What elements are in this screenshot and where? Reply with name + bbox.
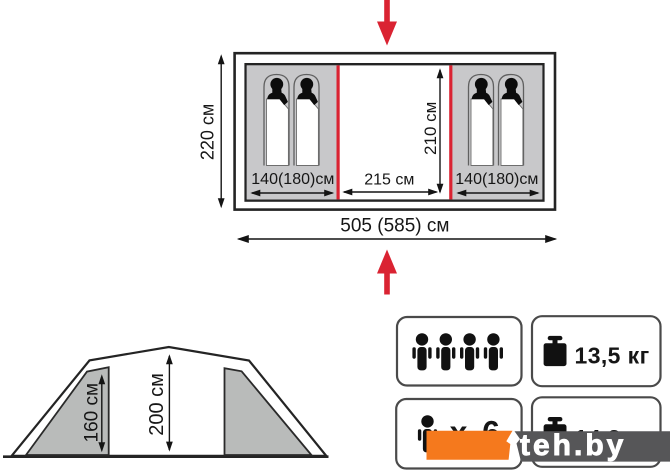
svg-text:140(180)см: 140(180)см: [455, 171, 538, 188]
svg-text:160 см: 160 см: [81, 383, 102, 443]
svg-text:200 см: 200 см: [146, 373, 168, 436]
svg-text:140(180)см: 140(180)см: [251, 171, 334, 188]
svg-text:220 см: 220 см: [197, 104, 217, 160]
svg-text:teh.by: teh.by: [520, 429, 626, 462]
svg-text:210 см: 210 см: [421, 102, 440, 155]
svg-text:215 см: 215 см: [364, 172, 414, 189]
svg-text:505 (585) см: 505 (585) см: [340, 215, 449, 236]
svg-text:13,5 кг: 13,5 кг: [575, 342, 650, 368]
